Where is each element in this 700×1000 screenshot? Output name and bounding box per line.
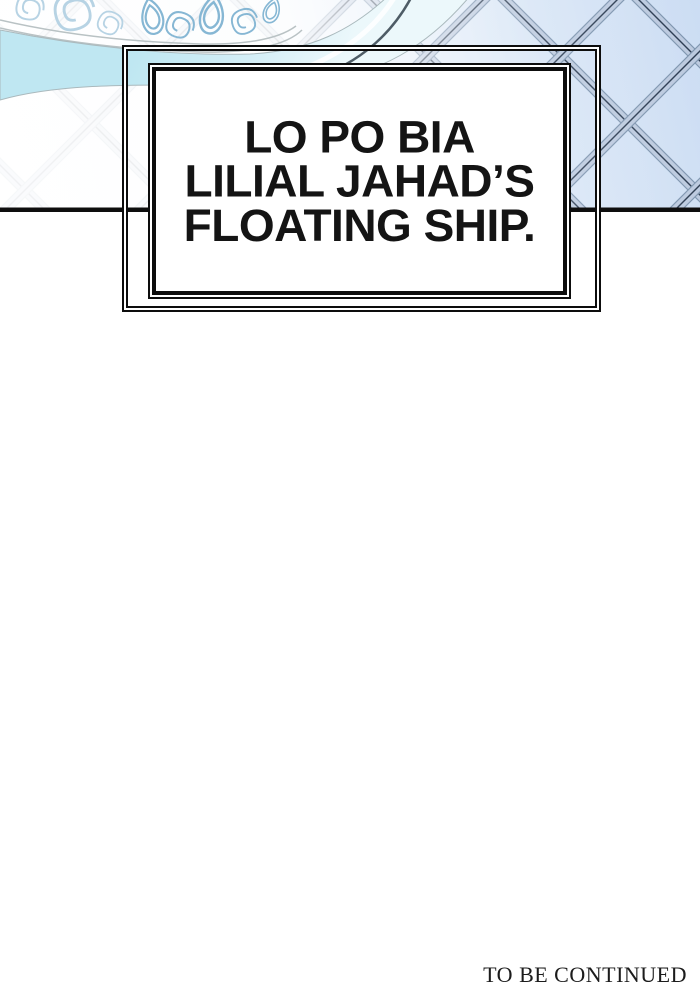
caption-line-3: FLOATING SHIP. [184,203,536,247]
caption-line-2: LILIAL JAHAD’S [184,159,536,203]
caption-text: LO PO BIA LILIAL JAHAD’S FLOATING SHIP. [184,115,536,247]
caption-box: LO PO BIA LILIAL JAHAD’S FLOATING SHIP. [122,45,601,312]
caption-box-inner: LO PO BIA LILIAL JAHAD’S FLOATING SHIP. [148,63,571,299]
webtoon-panel: LO PO BIA LILIAL JAHAD’S FLOATING SHIP. … [0,0,700,1000]
caption-line-1: LO PO BIA [184,115,536,159]
to-be-continued-label: TO BE CONTINUED [483,963,687,987]
